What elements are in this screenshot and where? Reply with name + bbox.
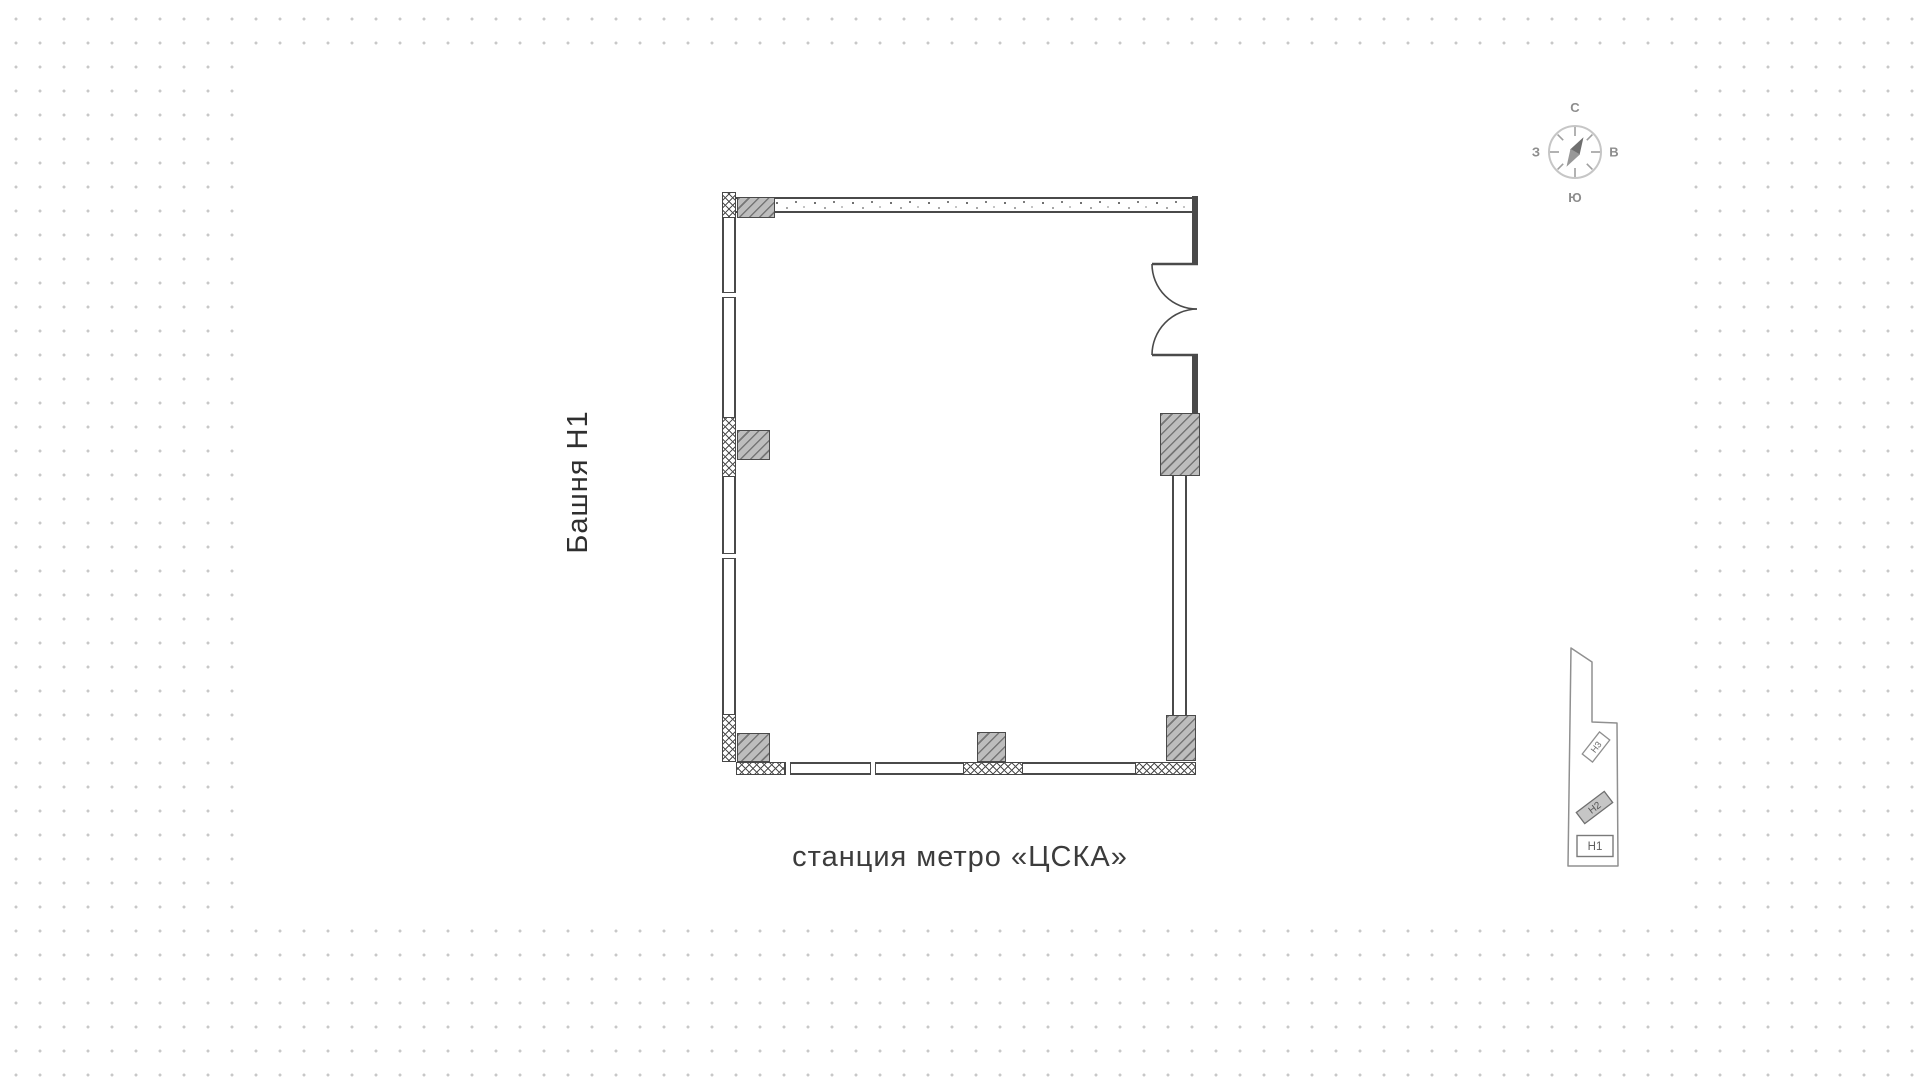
wall-top <box>735 197 1198 213</box>
unit-floor-area <box>736 213 1192 762</box>
mullion-divider <box>870 762 876 775</box>
wall-left-insulation-top <box>722 192 736 218</box>
compass-needle-icon <box>1562 135 1589 170</box>
tower-title: Башня Н1 <box>561 362 595 602</box>
mullion-divider <box>722 292 736 298</box>
floor-plan <box>722 192 1200 775</box>
mullion-divider <box>785 762 791 775</box>
compass-label-south: Ю <box>1568 190 1581 205</box>
column <box>737 430 770 460</box>
wall-left-insulation-bottom <box>722 714 736 762</box>
column <box>1166 715 1196 761</box>
compass-rose: С Ю З В <box>1515 90 1635 215</box>
column <box>1160 413 1200 476</box>
wall-right-below-door <box>1192 355 1198 413</box>
wall-bottom-insulation-right <box>1135 762 1196 775</box>
wall-bottom-insulation-mid <box>963 762 1023 775</box>
minimap-tower-h1-label: Н1 <box>1588 841 1603 853</box>
wall-right-lower-glazing <box>1172 476 1187 715</box>
wall-left-insulation-mid <box>722 417 736 477</box>
metro-station-label: станция метро «ЦСКА» <box>660 839 1260 875</box>
wall-right-upper <box>1192 196 1198 264</box>
compass-label-east: В <box>1609 145 1618 160</box>
minimap-tower-h1[interactable]: Н1 <box>1577 836 1613 857</box>
column <box>737 197 775 218</box>
column <box>977 732 1006 762</box>
compass-label-north: С <box>1570 100 1580 115</box>
wall-bottom-insulation-left <box>736 762 785 775</box>
compass-label-west: З <box>1532 145 1540 160</box>
mullion-divider <box>722 553 736 559</box>
site-minimap: Н3 Н2 Н1 <box>1558 638 1628 873</box>
column <box>737 733 770 762</box>
